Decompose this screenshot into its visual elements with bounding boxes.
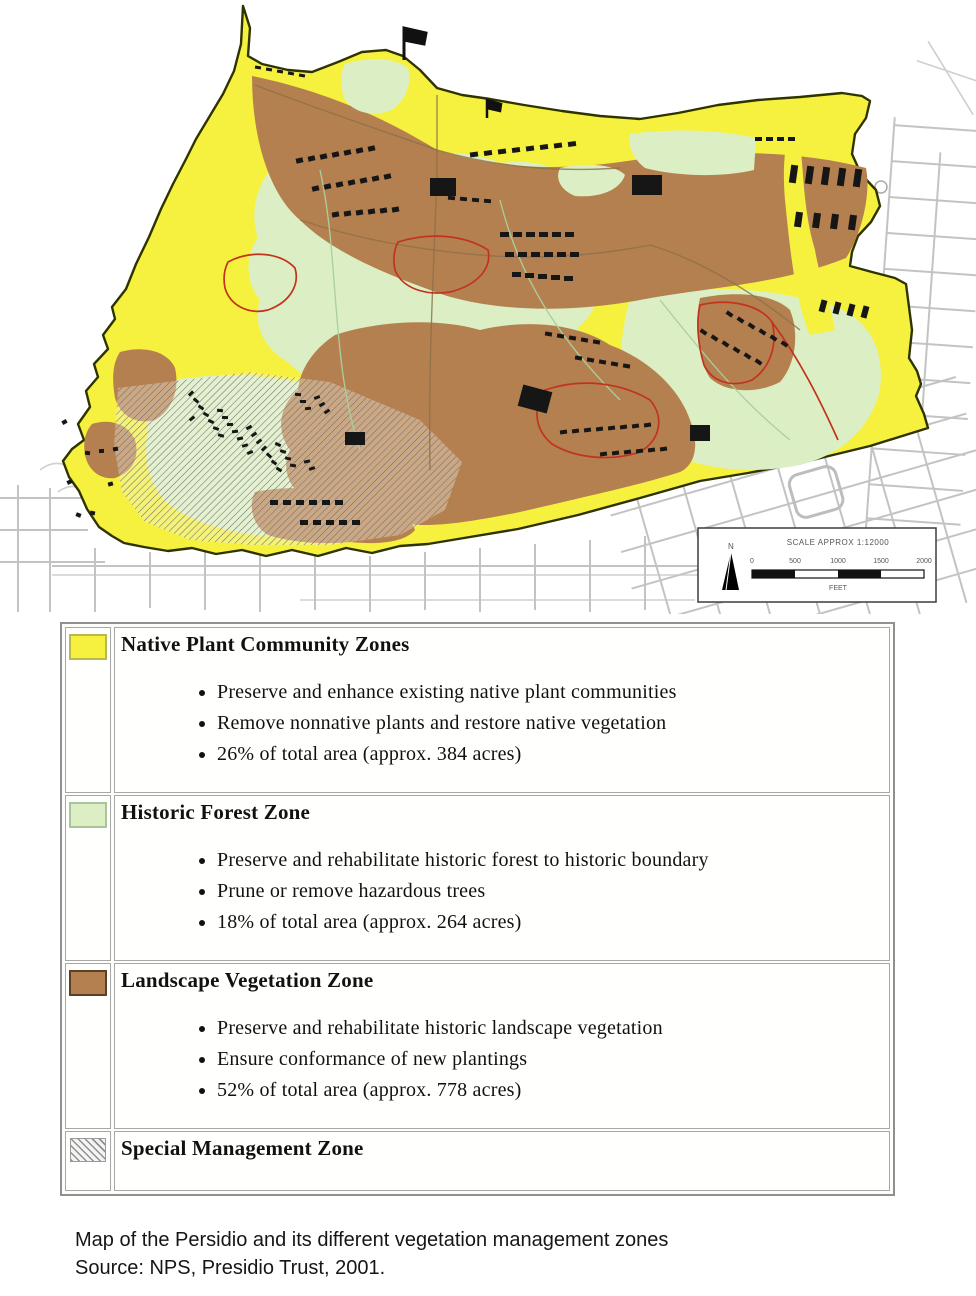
landscape-vegetation-swatch — [69, 970, 107, 996]
swatch-cell — [65, 1131, 111, 1191]
scale-tick: 2000 — [916, 558, 932, 565]
bullet: Remove nonnative plants and restore nati… — [217, 712, 889, 735]
scale-box: N SCALE APPROX 1:12000 0 500 1000 1500 2… — [698, 528, 936, 602]
bullet: Preserve and rehabilitate historic lands… — [217, 1017, 889, 1040]
presidio-map: N SCALE APPROX 1:12000 0 500 1000 1500 2… — [0, 0, 976, 614]
north-label: N — [728, 542, 734, 551]
scale-bar — [752, 570, 924, 578]
historic-forest-swatch — [69, 802, 107, 828]
legend-row-native-plant: Native Plant Community Zones Preserve an… — [65, 627, 890, 793]
zone-bullets: Preserve and enhance existing native pla… — [115, 681, 889, 766]
caption-line-2: Source: NPS, Presidio Trust, 2001. — [75, 1254, 668, 1282]
scale-title: SCALE APPROX 1:12000 — [787, 538, 890, 547]
bullet: Prune or remove hazardous trees — [217, 880, 889, 903]
special-management-swatch — [70, 1138, 106, 1162]
zone-title: Special Management Zone — [115, 1132, 889, 1161]
bullet: Preserve and rehabilitate historic fores… — [217, 849, 889, 872]
caption-line-1: Map of the Persidio and its different ve… — [75, 1226, 668, 1254]
figure-caption: Map of the Persidio and its different ve… — [75, 1226, 668, 1282]
bullet: 52% of total area (approx. 778 acres) — [217, 1079, 889, 1102]
legend-row-landscape-vegetation: Landscape Vegetation Zone Preserve and r… — [65, 963, 890, 1129]
zone-title: Landscape Vegetation Zone — [115, 964, 889, 993]
swatch-cell — [65, 627, 111, 793]
zone-bullets: Preserve and rehabilitate historic lands… — [115, 1017, 889, 1102]
scale-tick: 500 — [789, 558, 801, 565]
zone-bullets: Preserve and rehabilitate historic fores… — [115, 849, 889, 934]
native-plant-swatch — [69, 634, 107, 660]
legend-table: Native Plant Community Zones Preserve an… — [60, 622, 895, 1196]
bullet: Ensure conformance of new plantings — [217, 1048, 889, 1071]
swatch-cell — [65, 963, 111, 1129]
bullet: 18% of total area (approx. 264 acres) — [217, 911, 889, 934]
scale-tick: 1000 — [830, 558, 846, 565]
scale-tick: 1500 — [873, 558, 889, 565]
page: N SCALE APPROX 1:12000 0 500 1000 1500 2… — [0, 0, 976, 1296]
legend-row-historic-forest: Historic Forest Zone Preserve and rehabi… — [65, 795, 890, 961]
bullet: Preserve and enhance existing native pla… — [217, 681, 889, 704]
swatch-cell — [65, 795, 111, 961]
zone-title: Native Plant Community Zones — [115, 628, 889, 657]
scale-unit: FEET — [829, 585, 848, 592]
bullet: 26% of total area (approx. 384 acres) — [217, 743, 889, 766]
scale-tick: 0 — [750, 558, 754, 565]
map-figure: N SCALE APPROX 1:12000 0 500 1000 1500 2… — [0, 0, 976, 614]
legend-row-special-management: Special Management Zone — [65, 1131, 890, 1191]
zone-title: Historic Forest Zone — [115, 796, 889, 825]
